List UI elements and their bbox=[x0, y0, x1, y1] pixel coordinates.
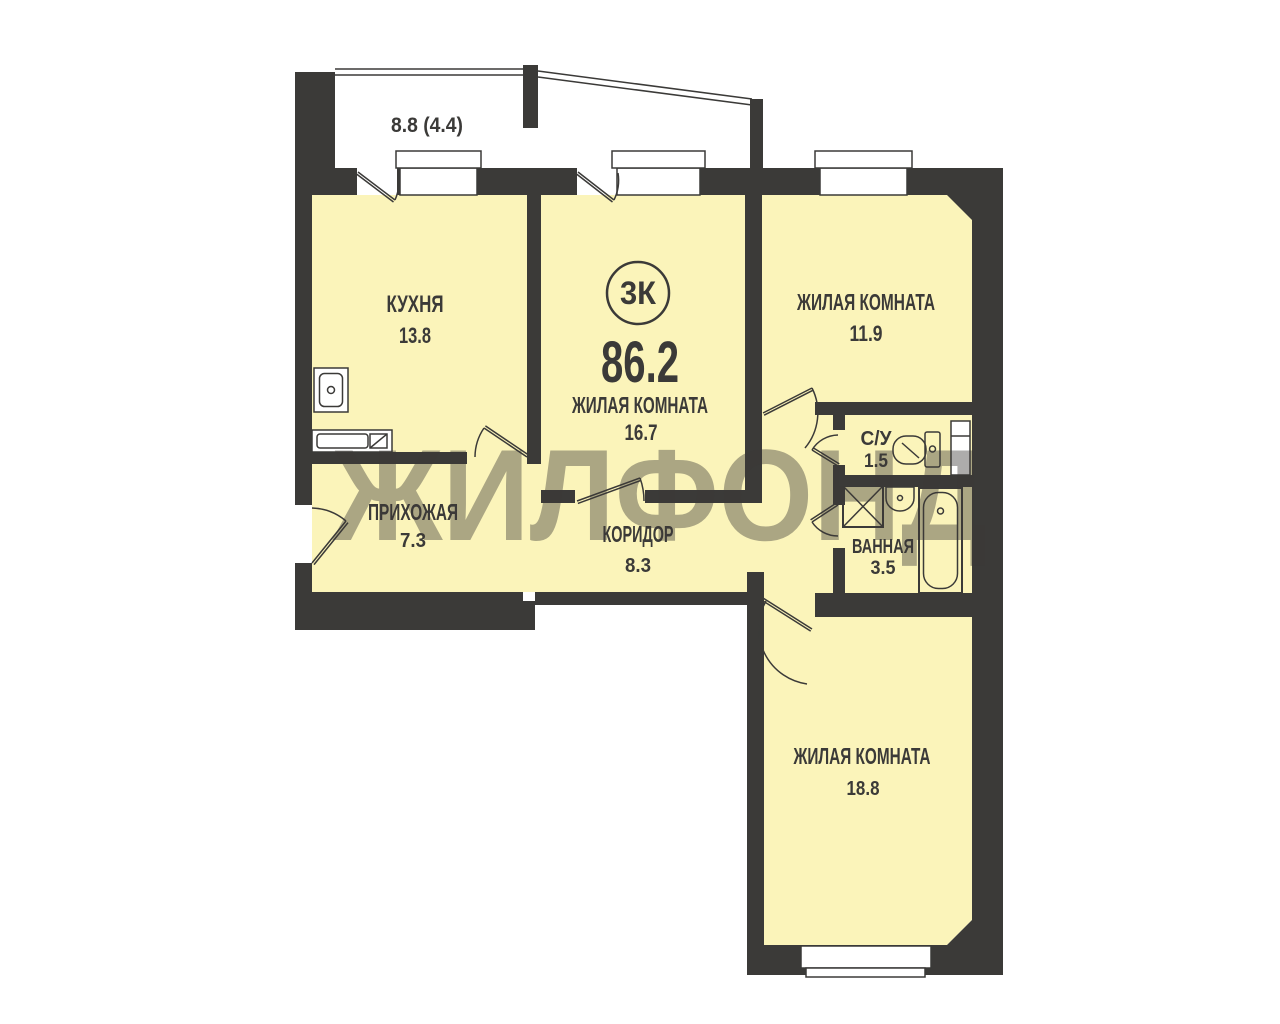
wall-notch bbox=[523, 592, 535, 601]
kitchen-window bbox=[400, 168, 477, 195]
wall-bottom-corridor bbox=[535, 592, 763, 605]
wall-right-outer bbox=[972, 195, 1003, 968]
living-right-area: 11.9 bbox=[850, 321, 883, 346]
living-right-window bbox=[820, 168, 907, 195]
floor-plan: 8.8 (4.4) КУХНЯ 13.8 3К 86.2 ЖИЛАЯ КОМНА… bbox=[0, 0, 1280, 1024]
watermark-text: ЖИЛФОНД bbox=[332, 422, 988, 568]
balcony-wall-post bbox=[523, 65, 538, 128]
balcony-area-label: 8.8 (4.4) bbox=[391, 114, 463, 137]
living-right-window-sill bbox=[815, 151, 912, 168]
kitchen-area: 13.8 bbox=[399, 323, 431, 348]
living-right-label: ЖИЛАЯ КОМНАТА bbox=[796, 289, 935, 315]
kitchen-balcony-door-opening bbox=[357, 168, 397, 195]
living-center-label: ЖИЛАЯ КОМНАТА bbox=[571, 392, 708, 418]
balcony-railing bbox=[538, 71, 752, 99]
balcony-end-post bbox=[750, 99, 763, 173]
living-center-window-sill bbox=[612, 151, 705, 168]
living-bottom-window-sill bbox=[806, 968, 925, 977]
living-center-balcony-door-opening bbox=[577, 168, 617, 195]
entrance-opening bbox=[295, 505, 312, 563]
wall-bath-bottom bbox=[815, 593, 1003, 617]
kitchen-label: КУХНЯ bbox=[387, 291, 444, 318]
room-count-badge: 3К bbox=[620, 275, 656, 311]
living-center-window bbox=[617, 168, 700, 195]
wall-top-left-corner bbox=[295, 72, 335, 195]
living-bottom-label: ЖИЛАЯ КОМНАТА bbox=[793, 743, 931, 769]
living-bottom-area: 18.8 bbox=[847, 778, 880, 800]
room-living-bottom-floor bbox=[755, 600, 974, 947]
living-bottom-window bbox=[801, 946, 931, 968]
total-area: 86.2 bbox=[601, 330, 679, 395]
kitchen-sink-icon bbox=[314, 368, 348, 412]
wall-bottom-hallway bbox=[295, 592, 535, 630]
wall-living-bottom-left bbox=[747, 572, 764, 975]
kitchen-window-sill bbox=[396, 151, 481, 168]
